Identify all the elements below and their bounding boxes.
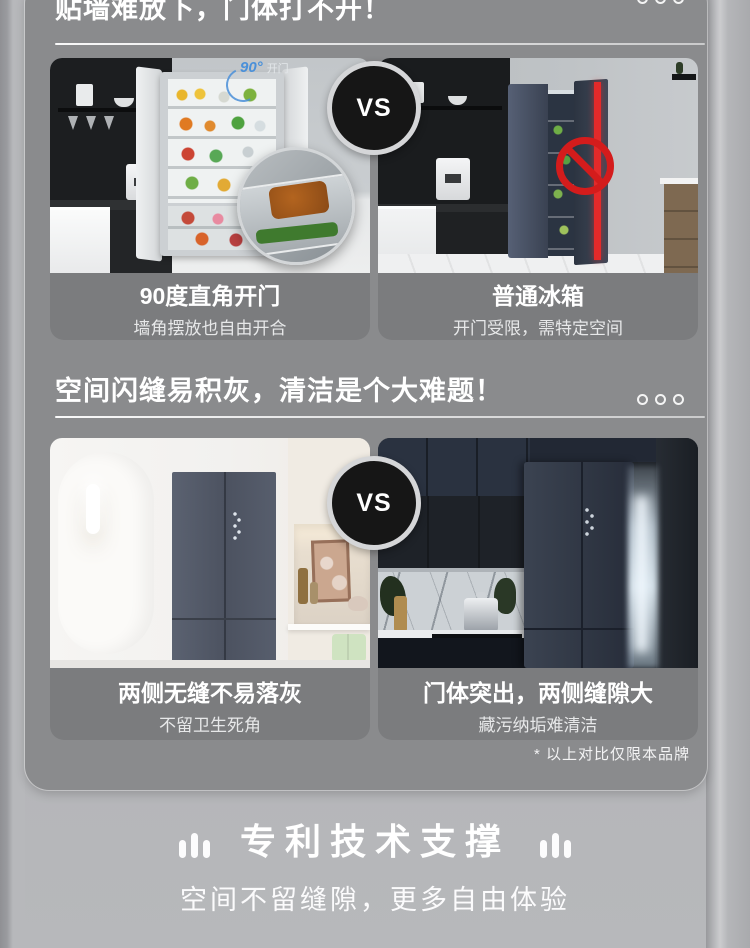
caption-90-degree: 90度直角开门 墙角摆放也自由开合 [50,273,370,340]
dark-side-wall [656,438,698,668]
lower-cabinet [378,638,530,668]
photo-90-degree-open-fridge: 90°开门 [50,58,370,273]
footer-section: 专利技术支撑 空间不留缝隙，更多自由体验 [0,820,750,917]
product-detail-page: { "page": { "sections": [ { "title": "贴墙… [0,0,750,948]
door-angle-label: 90°开门 [240,59,289,77]
decor-bottle [310,582,318,604]
fridge-display [232,510,242,540]
vs-badge: VS [327,61,421,155]
dust-mist-core [635,496,648,652]
decor-bars-icon [179,832,210,863]
caption-title: 门体突出，两侧缝隙大 [378,679,698,708]
wall-panel [58,452,154,654]
decor-bars-icon [540,832,571,863]
angle-open-text: 开门 [267,63,289,75]
vs-label: VS [356,94,391,123]
decor-bottle [298,568,308,604]
comparison-card-seamless: 两侧无缝不易落灰 不留卫生死角 [50,438,370,740]
section1-title: 贴墙难放下，门体打不开！ [55,0,391,26]
shelf-board [288,624,370,630]
protruding-fridge [524,462,634,668]
fridge-closed-door [508,84,548,258]
comparison-panel: 贴墙难放下，门体打不开！ [25,0,707,790]
flush-fridge [172,472,276,668]
comparison-card-90-degree: 90°开门 90度直角开门 墙角摆放也自由开合 [50,58,370,340]
caption-title: 普通冰箱 [378,282,698,311]
footer-title-row: 专利技术支撑 [0,820,750,863]
comparison-card-gaps: 门体突出，两侧缝隙大 藏污纳垢难清洁 [378,438,698,740]
vs-badge: VS [327,456,421,550]
photo-flush-fridge [50,438,370,668]
caption-subtitle: 墙角摆放也自由开合 [50,314,370,339]
section2-ellipsis-dots-icon [637,394,684,405]
caption-gaps: 门体突出，两侧缝隙大 藏污纳垢难清洁 [378,668,698,740]
kitchen-island [50,207,110,273]
coffee-machine [436,158,470,200]
caption-subtitle: 开门受限，需特定空间 [378,314,698,339]
photo-normal-fridge-blocked [378,58,698,273]
plant [676,62,683,74]
caption-title: 90度直角开门 [50,282,370,311]
section1-ellipsis-dots-icon [637,0,684,4]
cooking-pot [464,598,498,632]
green-towel [332,634,366,662]
disclaimer-footnote: * 以上对比仅限本品牌 [534,743,690,764]
prohibition-icon [556,137,614,195]
caption-normal-fridge: 普通冰箱 开门受限，需特定空间 [378,273,698,340]
caption-title: 两侧无缝不易落灰 [50,679,370,708]
fridge-display [584,506,596,538]
floor-line [50,660,370,668]
page-right-edge-shading [706,0,750,948]
section2-divider [55,416,705,418]
magnifier-inset-circle [237,147,355,265]
section1-divider [55,43,705,45]
wall-shelf [672,74,696,80]
wood-cabinet [664,184,698,273]
caption-seamless: 两侧无缝不易落灰 不留卫生死角 [50,668,370,740]
footer-title: 专利技术支撑 [240,820,510,863]
bottle [394,596,407,632]
comparison-card-normal-fridge: 普通冰箱 开门受限，需特定空间 [378,58,698,340]
footer-subtitle: 空间不留缝隙，更多自由体验 [0,878,750,917]
wall-lamp [86,484,100,534]
vs-label: VS [356,489,391,518]
photo-protruding-fridge [378,438,698,668]
angle-degree-text: 90° [240,59,263,76]
teapot [348,596,368,611]
fridge-open-door-left [136,66,162,261]
page-left-edge-shading [0,0,25,948]
caption-subtitle: 藏污纳垢难清洁 [378,711,698,736]
section2-title: 空间闪缝易积灰，清洁是个大难题！ [55,369,503,408]
kettle [76,84,93,106]
caption-subtitle: 不留卫生死角 [50,711,370,736]
